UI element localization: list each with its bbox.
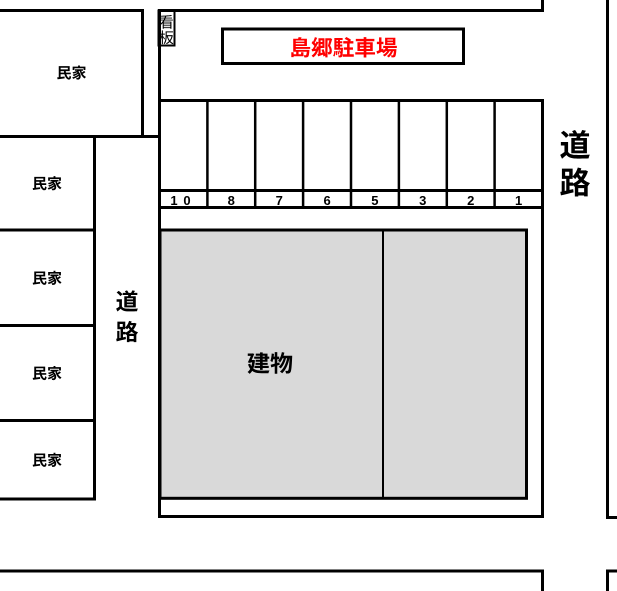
svg-text:1: 1 xyxy=(170,193,177,208)
svg-text:8: 8 xyxy=(228,193,235,208)
svg-text:7: 7 xyxy=(276,193,283,208)
svg-text:0: 0 xyxy=(183,193,190,208)
svg-text:1: 1 xyxy=(515,193,522,208)
svg-text:5: 5 xyxy=(371,193,378,208)
svg-text:3: 3 xyxy=(419,193,426,208)
svg-text:6: 6 xyxy=(323,193,330,208)
svg-text:2: 2 xyxy=(467,193,474,208)
